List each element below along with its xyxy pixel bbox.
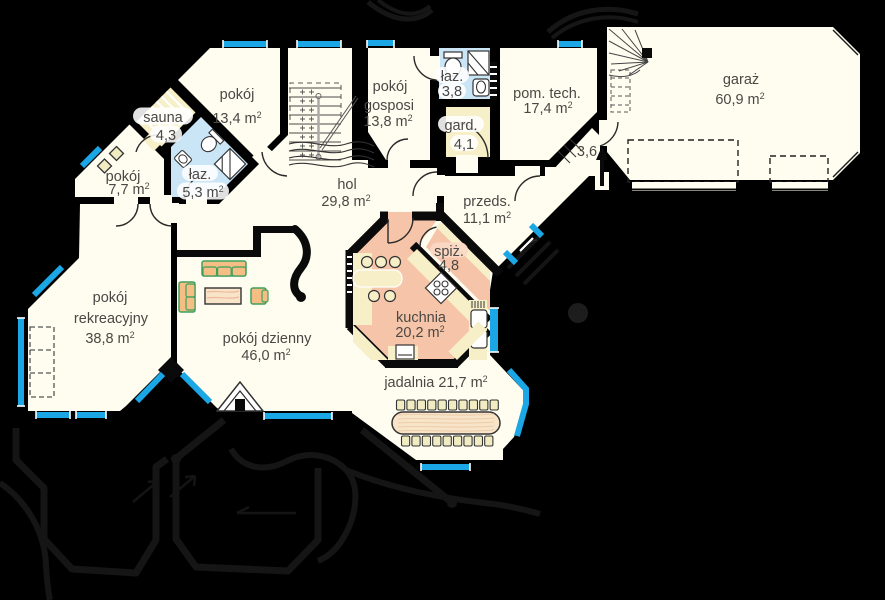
svg-text:łaz.: łaz.	[441, 69, 464, 85]
svg-text:garaż: garaż	[723, 72, 759, 88]
svg-text:5,3 m2: 5,3 m2	[182, 184, 223, 201]
svg-text:17,4 m2: 17,4 m2	[523, 100, 572, 117]
svg-text:gosposi: gosposi	[364, 98, 414, 114]
svg-text:pokój: pokój	[93, 290, 128, 306]
svg-text:pokój: pokój	[373, 79, 408, 95]
svg-text:pokój: pokój	[220, 87, 255, 103]
svg-text:20,2 m2: 20,2 m2	[395, 324, 444, 341]
svg-text:rekreacyjny: rekreacyjny	[74, 311, 149, 327]
svg-text:hol: hol	[337, 177, 356, 193]
svg-text:7,7 m2: 7,7 m2	[108, 181, 149, 198]
svg-text:przeds.: przeds.	[463, 194, 511, 210]
svg-text:3,8: 3,8	[442, 84, 462, 100]
svg-text:4,1: 4,1	[454, 137, 474, 153]
svg-text:sauna: sauna	[143, 110, 183, 126]
svg-text:13,8 m2: 13,8 m2	[363, 113, 412, 130]
svg-text:13,4 m2: 13,4 m2	[212, 110, 261, 127]
svg-text:4,8: 4,8	[439, 258, 459, 274]
svg-text:38,8 m2: 38,8 m2	[85, 330, 134, 347]
svg-text:łaz.: łaz.	[189, 167, 212, 183]
svg-text:60,9 m2: 60,9 m2	[715, 91, 764, 108]
svg-text:gard.: gard.	[444, 118, 477, 134]
svg-text:jadalnia 21,7 m2: jadalnia 21,7 m2	[383, 374, 487, 391]
svg-text:46,0 m2: 46,0 m2	[241, 347, 290, 364]
svg-text:11,1 m2: 11,1 m2	[463, 210, 511, 227]
svg-text:4,3: 4,3	[156, 128, 176, 144]
svg-text:pokój dzienny: pokój dzienny	[223, 331, 312, 347]
svg-text:29,8 m2: 29,8 m2	[321, 193, 370, 210]
svg-text:3,6: 3,6	[577, 144, 597, 160]
